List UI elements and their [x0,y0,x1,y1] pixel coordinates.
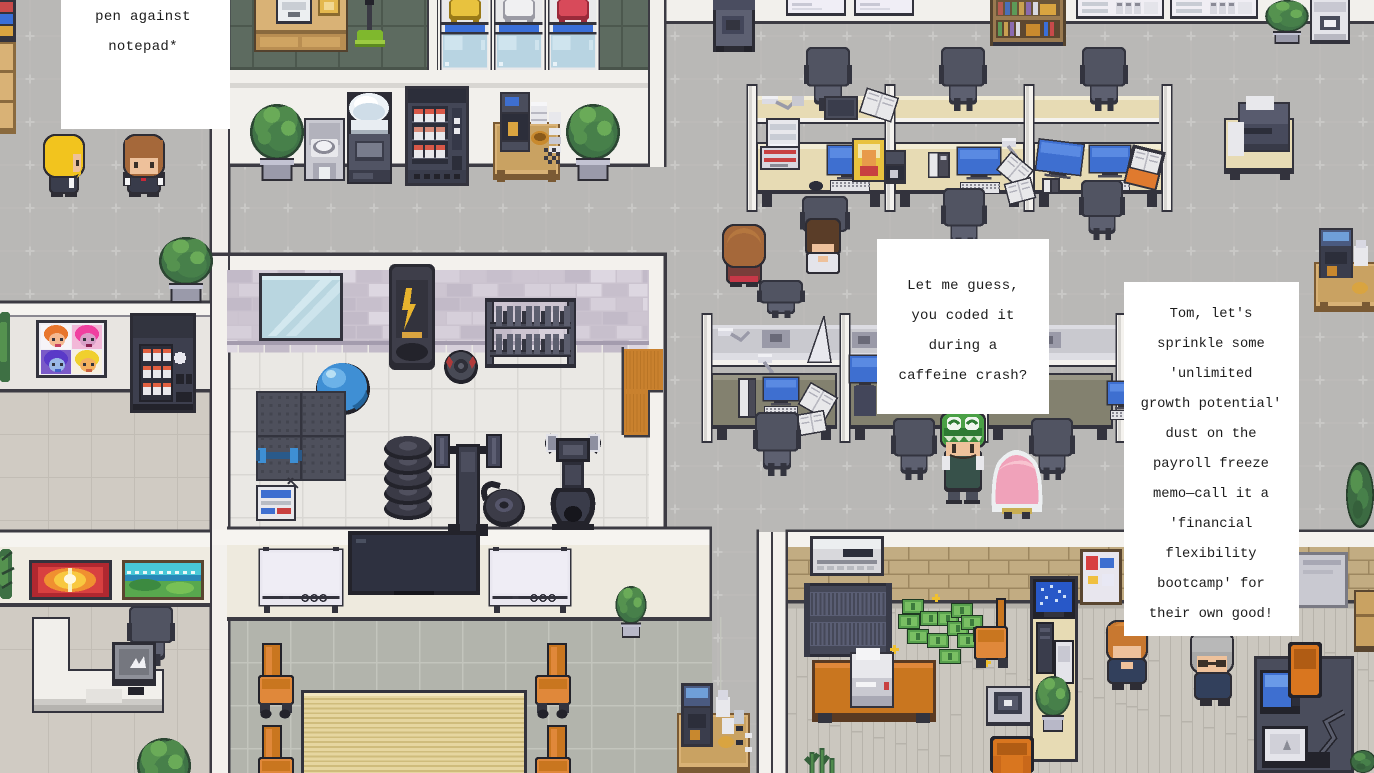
svg-text:memo—call it a: memo—call it a [1153,486,1269,502]
svg-text:caffeine crash?: caffeine crash? [898,368,1027,384]
svg-text:growth potential': growth potential' [1141,396,1282,412]
svg-text:pen against: pen against [95,9,191,25]
svg-text:'unlimited: 'unlimited [1170,366,1253,382]
svg-text:dust on the: dust on the [1165,426,1256,442]
svg-text:their own good!: their own good! [1149,606,1273,622]
svg-text:notepad*: notepad* [108,39,178,55]
svg-text:flexibility: flexibility [1165,546,1256,562]
svg-text:Tom, let's: Tom, let's [1170,306,1253,322]
svg-text:you coded it: you coded it [911,308,1014,324]
svg-text:'financial: 'financial [1170,516,1253,532]
svg-text:payroll freeze: payroll freeze [1153,456,1269,472]
svg-text:Let me guess,: Let me guess, [907,278,1019,294]
svg-text:bootcamp' for: bootcamp' for [1157,576,1265,592]
svg-text:sprinkle some: sprinkle some [1157,336,1265,352]
svg-text:during a: during a [929,338,998,354]
